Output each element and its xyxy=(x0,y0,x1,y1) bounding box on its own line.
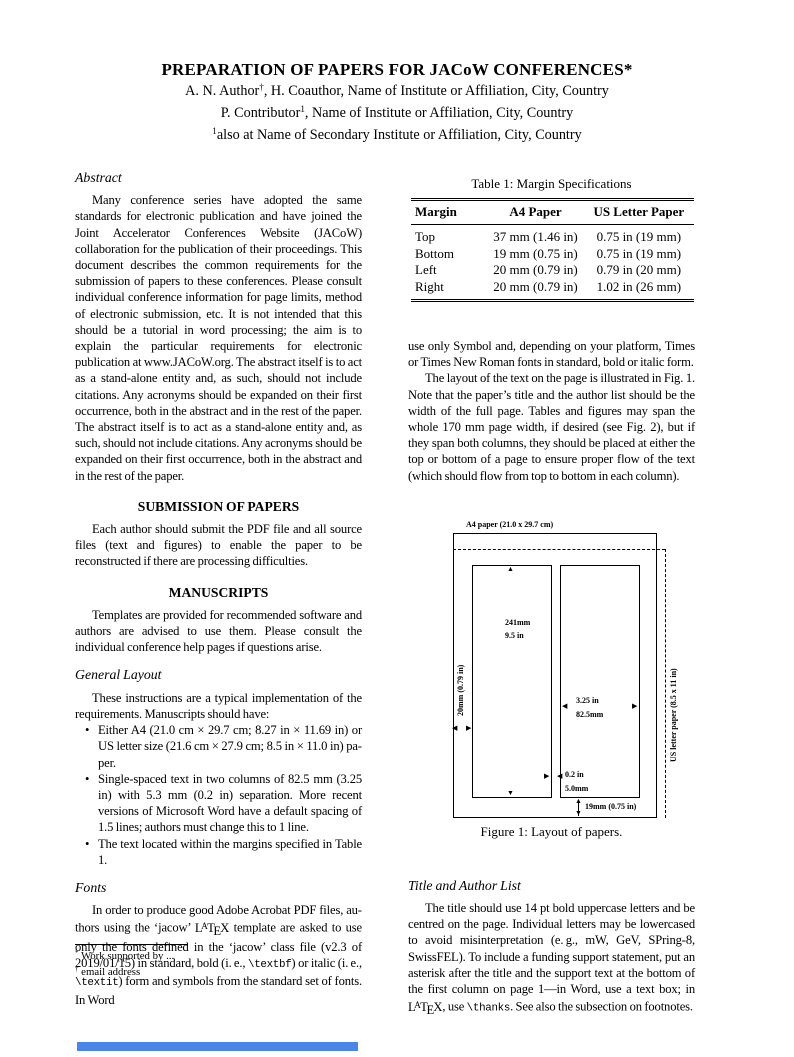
latex-logo: LATEX xyxy=(408,1000,442,1014)
figure-caption: Figure 1: Layout of papers. xyxy=(408,824,695,840)
table-row: Left20 mm (0.79 in)0.79 in (20 mm) xyxy=(411,262,694,278)
column-gap-arrow-right-icon xyxy=(544,773,549,780)
document-page: PREPARATION OF PAPERS FOR JACoW CONFEREN… xyxy=(0,0,794,1057)
abstract-paragraph: Many conference series have adopted the … xyxy=(75,192,362,484)
right-column: Table 1: Margin Specifications MarginA4 … xyxy=(408,168,695,1018)
bullet-item: Single-spaced text in two columns of 82.… xyxy=(75,771,362,836)
bullet-marker-icon xyxy=(85,722,89,738)
fonts-continued-paragraph: use only Symbol and, depending on your p… xyxy=(408,338,695,370)
us-letter-top-dashed-line xyxy=(453,549,665,550)
left-margin-arrow-right-icon xyxy=(466,725,471,732)
table-row: Right20 mm (0.79 in)1.02 in (26 mm) xyxy=(411,279,694,301)
margin-specifications-table: MarginA4 PaperUS Letter PaperTop37 mm (1… xyxy=(411,198,694,302)
bullet-item: Either A4 (21.0 cm × 29.7 cm; 8.27 in × … xyxy=(75,722,362,771)
bottom-margin-arrow-down-icon xyxy=(575,810,582,817)
footnote-text: email address xyxy=(78,966,140,978)
table-cell: 0.75 in (19 mm) xyxy=(584,225,694,246)
bottom-blue-bar xyxy=(77,1042,358,1051)
left-text-column-box xyxy=(472,565,552,798)
column-height-arrow-down-icon xyxy=(507,790,514,797)
table-cell: Bottom xyxy=(411,246,487,262)
column-gap-in-label: 0.2 in xyxy=(565,770,584,779)
manuscripts-paragraph: Templates are provided for recommended s… xyxy=(75,607,362,656)
column-height-arrow-up-icon xyxy=(507,566,514,573)
table-cell: Top xyxy=(411,225,487,246)
column-width-arrow-left-icon xyxy=(562,703,567,710)
table-cell: 37 mm (1.46 in) xyxy=(487,225,583,246)
bottom-margin-label: 19mm (0.75 in) xyxy=(585,802,636,811)
column-width-in-label: 3.25 in xyxy=(576,696,599,705)
table-cell: 19 mm (0.75 in) xyxy=(487,246,583,262)
table-cell: 1.02 in (26 mm) xyxy=(584,279,694,301)
title-block: PREPARATION OF PAPERS FOR JACoW CONFEREN… xyxy=(0,60,794,146)
footnote-text: Work supported by ... xyxy=(78,950,174,962)
table-header-cell: A4 Paper xyxy=(487,200,583,225)
bullet-text: Either A4 (21.0 cm × 29.7 cm; 8.27 in × … xyxy=(98,723,362,769)
table-cell: Right xyxy=(411,279,487,301)
abstract-heading: Abstract xyxy=(75,170,362,186)
fonts-heading: Fonts xyxy=(75,880,362,896)
title-author-list-paragraph: The title should use 14 pt bold uppercas… xyxy=(408,900,695,1018)
column-height-in-label: 9.5 in xyxy=(505,631,524,640)
general-layout-intro: These instructions are a typical impleme… xyxy=(75,690,362,722)
footnote-block: * Work supported by ...† email address xyxy=(75,944,362,980)
latex-logo: LATEX xyxy=(195,921,229,935)
column-width-mm-label: 82.5mm xyxy=(576,710,603,719)
title-author-list-heading: Title and Author List xyxy=(408,878,695,894)
footnote-line: * Work supported by ... xyxy=(75,949,362,965)
left-column: Abstract Many conference series have ado… xyxy=(75,168,362,1008)
table-header-cell: Margin xyxy=(411,200,487,225)
manuscripts-heading: MANUSCRIPTS xyxy=(75,585,362,601)
table-cell: 20 mm (0.79 in) xyxy=(487,279,583,301)
layout-paragraph: The layout of the text on the page is il… xyxy=(408,370,695,483)
submission-heading: SUBMISSION OF PAPERS xyxy=(75,499,362,515)
column-width-arrow-right-icon xyxy=(632,703,637,710)
author-line-1: A. N. Author†, H. Coauthor, Name of Inst… xyxy=(0,80,794,102)
bullet-marker-icon xyxy=(85,771,89,787)
us-letter-paper-label: US letter paper (8.5 x 11 in) xyxy=(669,658,678,762)
bullet-text: Single-spaced text in two columns of 82.… xyxy=(98,772,362,835)
submission-paragraph: Each author should submit the PDF file a… xyxy=(75,521,362,570)
table-cell: 20 mm (0.79 in) xyxy=(487,262,583,278)
table-cell: 0.75 in (19 mm) xyxy=(584,246,694,262)
footnote-lines: * Work supported by ...† email address xyxy=(75,949,362,980)
table-cell: 0.79 in (20 mm) xyxy=(584,262,694,278)
left-margin-label: 20mm (0.79 in) xyxy=(456,624,465,716)
table-header-row: MarginA4 PaperUS Letter Paper xyxy=(411,200,694,225)
general-layout-heading: General Layout xyxy=(75,667,362,683)
footnote-line: † email address xyxy=(75,965,362,981)
bullet-marker-icon xyxy=(85,836,89,852)
right-text-column-box xyxy=(560,565,640,798)
author-line-2: P. Contributor1, Name of Institute or Af… xyxy=(0,102,794,124)
table-cell: Left xyxy=(411,262,487,278)
figure-1: A4 paper (21.0 x 29.7 cm) US letter pape… xyxy=(408,520,695,844)
general-layout-bullets: Either A4 (21.0 cm × 29.7 cm; 8.27 in × … xyxy=(75,722,362,868)
column-height-mm-label: 241mm xyxy=(505,618,530,627)
bottom-margin-arrow-up-icon xyxy=(575,798,582,805)
left-margin-arrow-left-icon xyxy=(452,725,457,732)
a4-paper-label: A4 paper (21.0 x 29.7 cm) xyxy=(466,520,553,529)
column-gap-mm-label: 5.0mm xyxy=(565,784,588,793)
table-row: Bottom19 mm (0.75 in)0.75 in (19 mm) xyxy=(411,246,694,262)
author-line-3: 1also at Name of Secondary Institute or … xyxy=(0,124,794,146)
us-letter-right-dashed-line xyxy=(665,549,666,818)
footnote-rule xyxy=(75,944,188,945)
table-header-cell: US Letter Paper xyxy=(584,200,694,225)
column-gap-arrow-left-icon xyxy=(557,773,562,780)
table-caption: Table 1: Margin Specifications xyxy=(408,176,695,192)
paper-title: PREPARATION OF PAPERS FOR JACoW CONFEREN… xyxy=(0,60,794,80)
bullet-item: The text located within the margins spec… xyxy=(75,836,362,868)
table-row: Top37 mm (1.46 in)0.75 in (19 mm) xyxy=(411,225,694,246)
bullet-text: The text located within the margins spec… xyxy=(98,837,362,867)
